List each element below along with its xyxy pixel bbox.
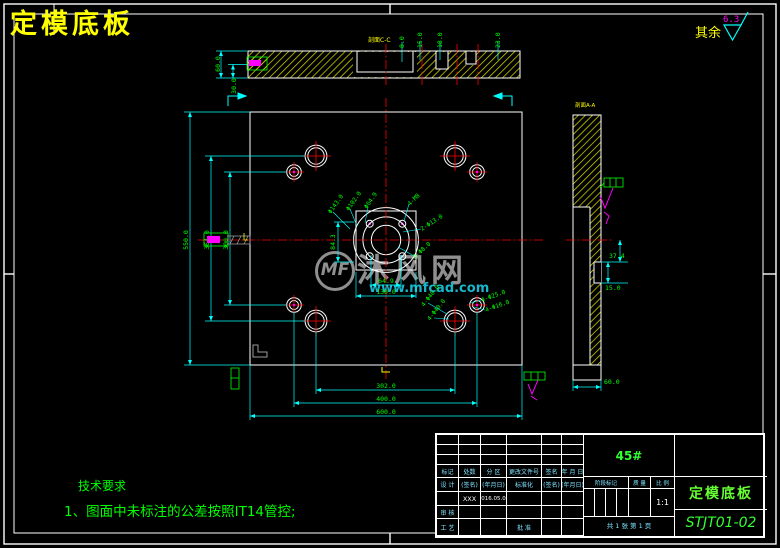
tb-cell	[481, 435, 507, 445]
tb-cell	[542, 492, 562, 506]
plan-view: Φ143.0 Φ102.0 Φ64.9 4-M8 2-Φ13.0 2-Φ8.0 …	[182, 93, 545, 420]
label-pair-large: 2-Φ13.0	[419, 213, 444, 233]
title-block-right: 定模底板 STJT01-02	[674, 435, 767, 536]
tb-mass-value	[629, 489, 651, 516]
tb-stage-values: 1:1	[584, 489, 674, 517]
roughness-mark-side	[600, 188, 613, 224]
tb-rev-header: 签名	[542, 465, 562, 478]
dim-side-thickness: 60.0	[604, 378, 620, 386]
tb-rev-header: 标记	[437, 465, 459, 478]
tb-sign-header: (年月日)	[562, 478, 584, 492]
page-title: 定模底板	[10, 8, 134, 40]
dim-side-offset: 37.4	[609, 252, 625, 260]
tb-rev-header: 年 月 日	[562, 465, 584, 478]
tb-part-name: 定模底板	[675, 477, 767, 510]
tb-rev-header: 处数	[459, 465, 481, 478]
tb-cell	[481, 519, 507, 536]
tb-cell	[507, 492, 542, 506]
tb-cell	[507, 506, 542, 519]
section-label-top: 剖面C-C	[368, 36, 391, 44]
dim-plate-height: 550.0	[182, 230, 190, 250]
gdt-frame-right	[524, 372, 545, 380]
dim-bore-width: 64.9	[378, 277, 394, 285]
dim-col-small: 400.0	[376, 395, 396, 403]
tb-cell	[459, 519, 481, 536]
tb-sign-header: (年月日)	[481, 478, 507, 492]
tb-cell	[459, 506, 481, 519]
tb-stage-headers: 阶段标记 质 量 比 例	[584, 477, 674, 489]
label-bc-outer: Φ143.0	[327, 193, 345, 215]
tech-req-heading: 技术要求	[78, 479, 126, 493]
title-block-revision-grid: 标记 处数 分 区 更改文件号 签名 年 月 日 设 计 (签名) (年月日) …	[437, 435, 584, 536]
dim-plate-width: 600.0	[376, 408, 396, 416]
surface-finish-label: 其余	[695, 25, 721, 41]
tb-rev-header: 分 区	[481, 465, 507, 478]
tb-cell	[481, 506, 507, 519]
tb-cell	[542, 445, 562, 455]
dim-pocket-width: 130.0	[376, 288, 396, 296]
tb-cell	[542, 455, 562, 465]
dim-topview-30: 30.0	[230, 78, 238, 94]
tb-sheet-count: 共 1 张 第 1 页	[584, 517, 674, 535]
gdt-frame-side	[600, 178, 623, 188]
dim-topview-8: 8.0	[398, 36, 406, 48]
tb-cell	[542, 435, 562, 445]
tb-cell	[437, 445, 459, 455]
tb-cell	[437, 492, 459, 506]
title-block: 标记 处数 分 区 更改文件号 签名 年 月 日 设 计 (签名) (年月日) …	[435, 433, 765, 538]
tb-sign-header: (签名)	[459, 478, 481, 492]
tb-date: 2016.05.06	[481, 492, 507, 506]
tb-cell	[481, 455, 507, 465]
tb-designer-name: XXX	[459, 492, 481, 506]
cad-drawing-sheet: MF 沐风网 www.mfcad.com 定模底板	[0, 0, 780, 548]
tb-cell	[562, 506, 584, 519]
tb-cell	[459, 445, 481, 455]
tb-cell	[481, 445, 507, 455]
dim-side-notch: 15.0	[605, 284, 621, 292]
dim-pocket-offset: 84.3	[329, 234, 337, 250]
tb-approve-label: 批 准	[507, 519, 542, 536]
label-tapped-holes: 4-M8	[406, 192, 421, 207]
tb-sign-header: (签名)	[542, 478, 562, 492]
corner-hole-centermarks	[284, 141, 487, 336]
label-bc-mid: Φ102.0	[345, 190, 363, 212]
tb-cell	[562, 519, 584, 536]
surface-finish-value: 6.3	[723, 15, 739, 25]
hole-marker-dots	[293, 171, 478, 306]
tb-cell	[437, 455, 459, 465]
tb-cell	[507, 455, 542, 465]
technical-requirements: 技术要求 1、图面中未标注的公差按照IT14管控;	[64, 479, 296, 520]
tb-stage-header: 阶段标记	[584, 477, 629, 488]
dim-col-large: 302.0	[376, 382, 396, 390]
tb-cell	[562, 445, 584, 455]
tb-material: 45#	[584, 435, 674, 477]
section-cut-arrows	[228, 93, 512, 106]
tb-cell	[437, 435, 459, 445]
tb-sign-header: 设 计	[437, 478, 459, 492]
tb-cell	[562, 455, 584, 465]
dim-topview-23: 23.0	[494, 32, 502, 48]
tb-stage-subcells	[584, 489, 629, 516]
roughness-mark-right	[528, 380, 538, 400]
title-block-middle: 45# 阶段标记 质 量 比 例 1:1 共 1 张 第 1 页	[584, 435, 674, 536]
surface-finish-note: 其余 6.3	[695, 12, 748, 41]
tb-cell	[562, 435, 584, 445]
tb-cell	[459, 435, 481, 445]
tb-rev-header: 更改文件号	[507, 465, 542, 478]
tb-drawing-number: STJT01-02	[675, 510, 767, 536]
tb-cell	[507, 435, 542, 445]
label-pair-small: 2-Φ8.0	[412, 241, 433, 261]
gdt-frame-left	[231, 368, 239, 389]
side-section-view: 37.4 15.0 60.0 剖面A-A	[566, 101, 628, 391]
dim-topview-18: 18.0	[436, 32, 444, 48]
tb-cell	[542, 506, 562, 519]
tb-cell	[542, 519, 562, 536]
tb-scale-header: 比 例	[651, 477, 674, 488]
label-bore: Φ64.9	[363, 191, 379, 210]
tb-cell	[507, 445, 542, 455]
tb-cell	[459, 455, 481, 465]
corner-holes	[287, 145, 485, 332]
corner-relief-mark	[253, 345, 267, 357]
tech-req-item: 1、图面中未标注的公差按照IT14管控;	[64, 504, 296, 520]
tb-scale-value: 1:1	[651, 489, 674, 516]
dim-topview-60: 60.0	[214, 56, 222, 72]
tb-sign-header: 标准化	[507, 478, 542, 492]
top-section-view: 60.0 30.0 8.0 15.0 18.0 23.0 剖面C-C	[214, 32, 520, 94]
tb-mass-header: 质 量	[629, 477, 651, 488]
tb-process-label: 工 艺	[437, 519, 459, 536]
dim-topview-15: 15.0	[416, 32, 424, 48]
section-label-side: 剖面A-A	[575, 101, 596, 109]
tb-audit-label: 审 核	[437, 506, 459, 519]
tb-cell	[562, 492, 584, 506]
tb-company-cell	[675, 435, 767, 477]
